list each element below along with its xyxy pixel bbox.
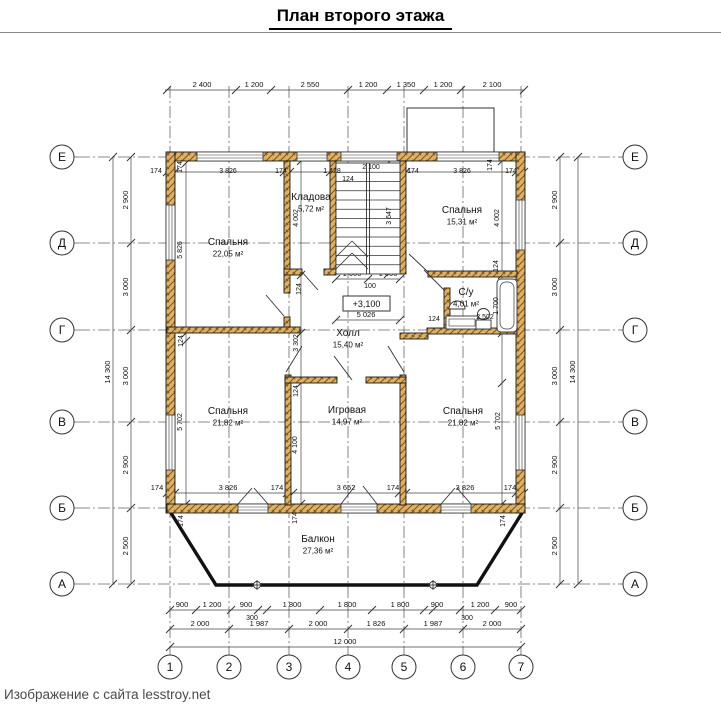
dimension-label: 2 502 (476, 314, 494, 321)
dimension-label: 1 800 (391, 600, 410, 609)
dimension-label: 2 900 (121, 456, 130, 475)
dimension-label: 900 (431, 600, 444, 609)
grid-row-bubble-label: Г (59, 323, 66, 337)
vanity-counter (446, 316, 478, 329)
room-area: 21,82 м² (448, 419, 479, 428)
dimension-label: 900 (505, 600, 518, 609)
dimension-label: 124 (178, 335, 185, 347)
dimension-label: 2 400 (193, 80, 212, 89)
door-leaf (302, 272, 318, 290)
dimension-label: 3 826 (219, 168, 237, 175)
dimension-label: 300 (461, 615, 473, 622)
dimension-label: 174 (487, 159, 494, 171)
door-leaf (441, 488, 455, 504)
dimension-label: 174 (177, 161, 184, 173)
dimension-label: 2 100 (483, 80, 502, 89)
door-leaf (254, 488, 268, 504)
dimension-label: 174 (504, 483, 517, 492)
dimension-label: 2 000 (309, 619, 328, 628)
dimension-label: 2 550 (301, 80, 320, 89)
doors (238, 254, 471, 504)
wall (400, 375, 406, 505)
dimension-label: 124 (342, 176, 354, 183)
grid-row-bubble-label: Д (58, 236, 66, 250)
dimension-label: 174 (150, 168, 162, 175)
window (441, 504, 471, 513)
dimension-label: 1 700 (493, 297, 500, 315)
wall (400, 161, 406, 274)
grid-row-bubble-label: Б (631, 501, 639, 515)
elevation: +3,100 (343, 296, 390, 311)
dimension-label: 1 826 (367, 619, 386, 628)
dimension-label: 2 900 (550, 456, 559, 475)
room-label: Холл (336, 328, 360, 339)
dimension-label: 3 000 (550, 367, 559, 386)
dimension-label: 2 900 (121, 191, 130, 210)
wall (284, 269, 302, 275)
grid-row-bubble-label: Е (58, 150, 66, 164)
grid-col-bubble-label: 1 (167, 660, 174, 674)
room-label: Спальня (208, 237, 248, 248)
dimension-label: 12 000 (334, 637, 357, 646)
room-label: Спальня (208, 406, 248, 417)
dimension-label: 2 000 (483, 619, 502, 628)
grid-col-bubble-label: 3 (286, 660, 293, 674)
dimension-label: 5 702 (177, 413, 184, 431)
dimension-label: 14 300 (568, 361, 577, 384)
title-rule (0, 32, 721, 33)
dimension-label: 100 (364, 283, 376, 290)
window (341, 152, 397, 161)
grid-row-bubble-label: Е (631, 150, 639, 164)
dimension-label: 1 800 (338, 600, 357, 609)
window (197, 152, 263, 161)
elevation-value: +3,100 (353, 299, 381, 309)
page-title: План второго этажа (0, 6, 721, 26)
dimension-label: 174 (271, 483, 284, 492)
room-label: Спальня (442, 205, 482, 216)
dimension-label: 900 (240, 600, 253, 609)
grid-col-bubble-label: 5 (401, 660, 408, 674)
wall (167, 327, 300, 333)
dimension-label: 2 000 (191, 619, 210, 628)
dimension-label: 2 500 (121, 537, 130, 556)
dimension-label: 3 000 (550, 278, 559, 297)
roof-protrusion (407, 108, 494, 157)
wall (400, 333, 428, 339)
dimension-label: 3 647 (386, 207, 393, 225)
grid-col-bubble-label: 7 (518, 660, 525, 674)
room-area: 14,97 м² (332, 418, 363, 427)
roof-protrusion-outline (407, 108, 494, 157)
room-area: 4,01 м² (453, 300, 479, 309)
dimension-label: 3 826 (456, 483, 475, 492)
door-leaf (388, 346, 404, 372)
dimension-label: 124 (428, 316, 440, 323)
room-area: 21,82 м² (213, 419, 244, 428)
dimension-label: 124 (293, 385, 300, 397)
room-area: 27,36 м² (303, 547, 334, 556)
grid-row-bubble-label: В (631, 415, 639, 429)
dimension-label: 1 200 (434, 80, 453, 89)
dimension-label: 14 300 (103, 361, 112, 384)
dimension-label: 1 987 (424, 619, 443, 628)
dimension-label: 4 002 (494, 209, 501, 227)
dimension-label: 2 100 (362, 164, 380, 171)
balcony (171, 513, 522, 590)
dimension-label: 1 800 (283, 600, 302, 609)
floor-plan: 2 4001 2002 5501 2001 3501 2002 1001743 … (0, 0, 721, 716)
dimension-label: 174 (292, 512, 299, 524)
grid-col-bubble-label: 6 (460, 660, 467, 674)
dimension-label: 5 826 (177, 241, 184, 259)
room-area: 15,40 м² (333, 341, 364, 350)
wall (428, 271, 517, 277)
dimension-label: 3 000 (121, 367, 130, 386)
wall (330, 161, 336, 274)
dimension-label: 1 200 (471, 600, 490, 609)
dimension-label: 1 200 (359, 80, 378, 89)
room-area: 5,72 м² (298, 205, 324, 214)
toilet-icon (476, 320, 491, 329)
wall (324, 269, 336, 275)
dimension-label: 2 500 (550, 537, 559, 556)
dimension-label: 2 900 (550, 191, 559, 210)
room-label: Кладова (291, 192, 331, 203)
window (166, 205, 175, 260)
dimension-label: 300 (246, 615, 258, 622)
dimension-label: 124 (493, 260, 500, 272)
dimension-label: 174 (407, 168, 419, 175)
dimension-label: 3 000 (121, 278, 130, 297)
dimension-label: 174 (178, 515, 185, 527)
room-area: 15,31 м² (447, 218, 478, 227)
window (516, 200, 525, 250)
dimension-label: 3 826 (453, 168, 471, 175)
dimension-label: 1 428 (323, 168, 341, 175)
dimension-label: 1 350 (397, 80, 416, 89)
room-label: Спальня (443, 406, 483, 417)
wall (285, 377, 337, 383)
window (516, 415, 525, 470)
window (238, 504, 268, 513)
dimension-label: 3 302 (293, 334, 300, 352)
page-title-text: План второго этажа (269, 6, 453, 30)
source-caption: Изображение с сайта lesstroy.net (4, 687, 210, 702)
window (297, 152, 327, 161)
room-area: 22,05 м² (213, 250, 244, 259)
door-leaf (238, 488, 252, 504)
dimension-label: 124 (296, 283, 303, 295)
dimension-label: 174 (505, 168, 517, 175)
door-leaf (409, 254, 428, 272)
dimension-label: 1 200 (203, 600, 222, 609)
grid-row-bubble-label: Б (58, 501, 66, 515)
grid-col-bubble-label: 4 (345, 660, 352, 674)
room-label: Игровая (328, 405, 366, 416)
grid-row-bubble-label: А (631, 577, 639, 591)
dimension-label: 174 (151, 483, 164, 492)
grid-row-bubble-label: Д (631, 236, 639, 250)
dimension-label: 3 652 (337, 483, 356, 492)
dimension-label: 1 200 (245, 80, 264, 89)
door-leaf (363, 486, 377, 504)
window (341, 504, 377, 513)
grid-row-bubble-label: А (58, 577, 66, 591)
dimension-label: 174 (387, 483, 400, 492)
grid-row-bubble-label: Г (632, 323, 639, 337)
dimension-label: 3 826 (219, 483, 238, 492)
dimension-label: 4 100 (292, 436, 299, 454)
wall (366, 377, 406, 383)
wall (285, 375, 291, 505)
grid-row-bubble-label: В (58, 415, 66, 429)
dimension-label: 174 (275, 168, 287, 175)
dimension-label: 5 702 (495, 412, 502, 430)
room-label: Балкон (301, 534, 335, 545)
door-leaf (334, 356, 352, 380)
dimension-label: 174 (500, 515, 507, 527)
door-leaf (266, 295, 284, 316)
grid-col-bubble-label: 2 (226, 660, 233, 674)
balcony-outline (171, 513, 522, 585)
dimension-label: 900 (176, 600, 189, 609)
room-label: С/у (459, 287, 474, 298)
window (166, 415, 175, 470)
